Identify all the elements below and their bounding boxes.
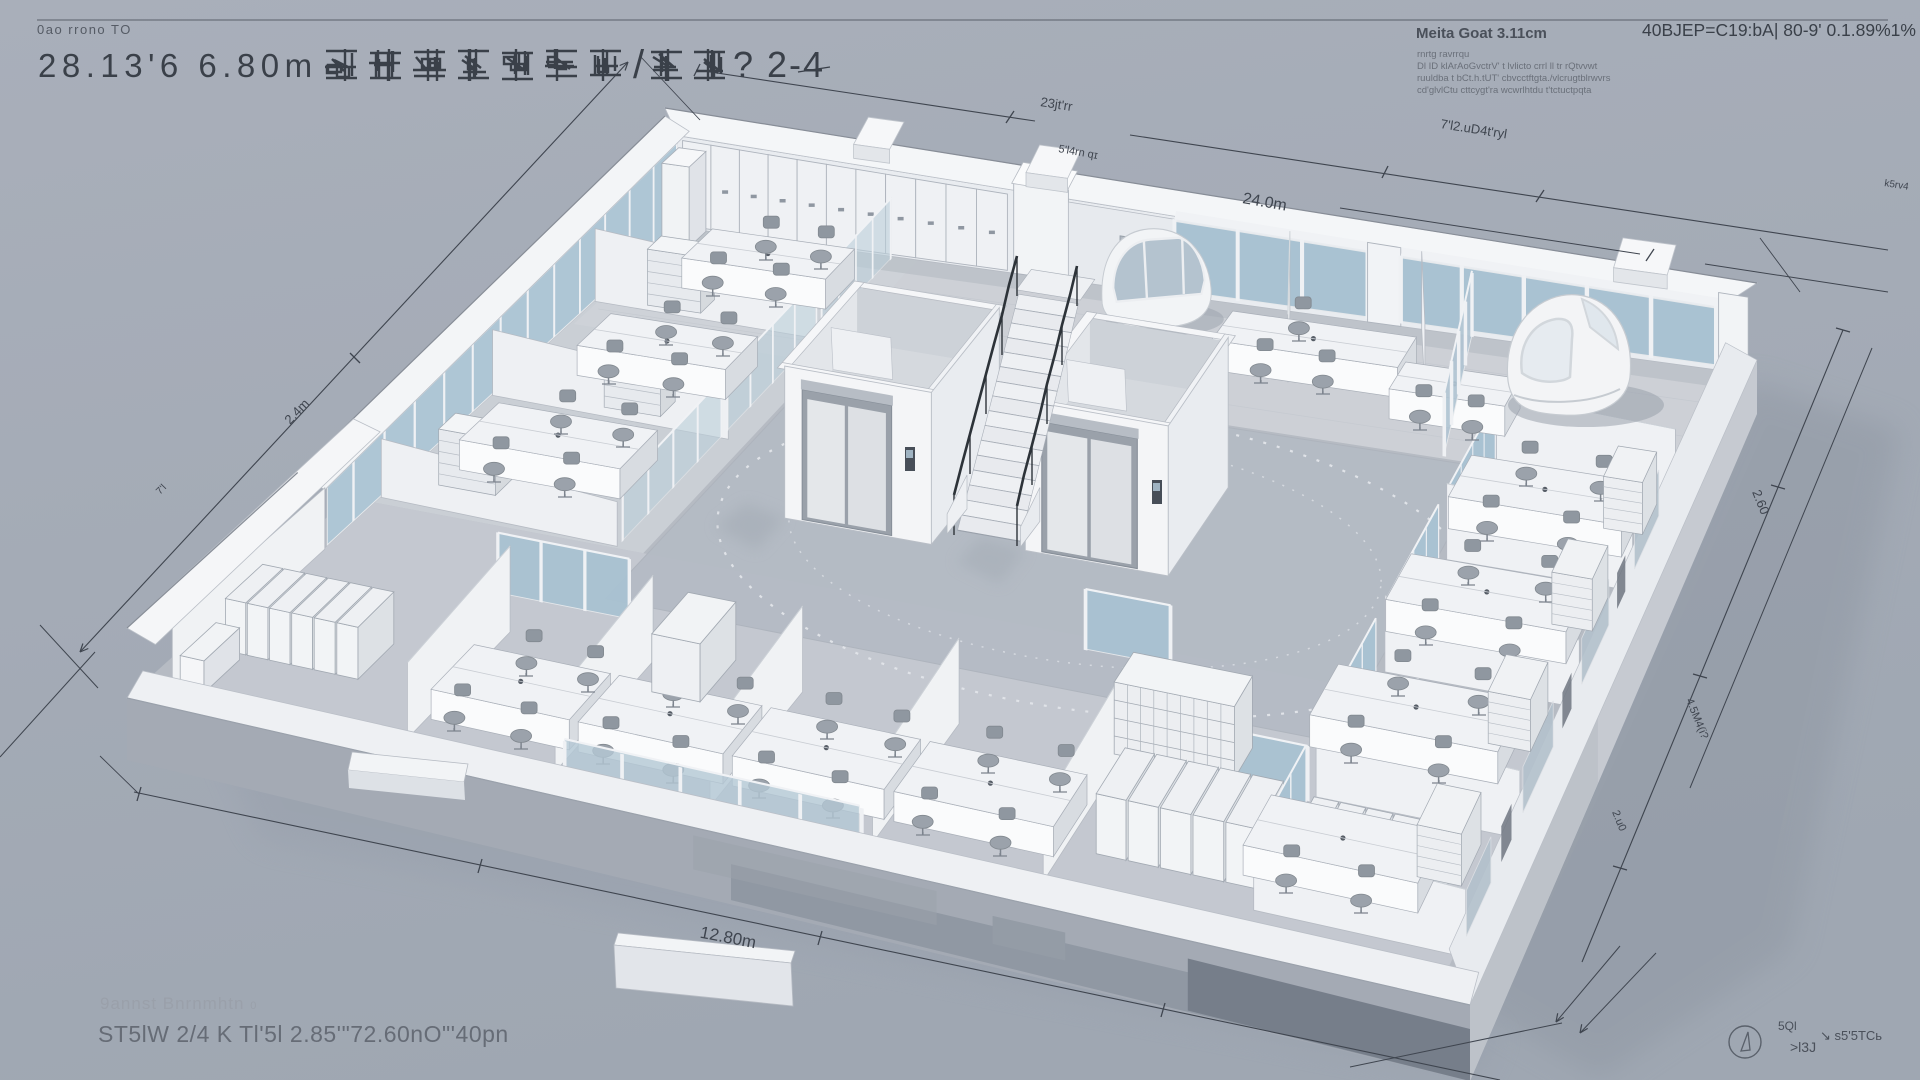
svg-text:ruuldba t bCt.h.tUT' cbvcctftg: ruuldba t bCt.h.tUT' cbvcctftgta./vlcrug… <box>1417 73 1611 84</box>
svg-text:>l3J: >l3J <box>1790 1039 1816 1055</box>
svg-text:40BJEP=C19:bA| 80-9' 0.1.89%1%: 40BJEP=C19:bA| 80-9' 0.1.89%1% <box>1642 20 1916 40</box>
svg-text:Meita Goat 3.11cm: Meita Goat 3.11cm <box>1416 25 1547 42</box>
svg-text:/: / <box>633 43 645 87</box>
svg-text:rnrtg ravrrqu: rnrtg ravrrqu <box>1417 49 1469 60</box>
svg-text:9annst Bnrnmhtn 0: 9annst Bnrnmhtn 0 <box>100 994 257 1013</box>
svg-text:cd'glvlCtu cttcygt'ra wcwrlhtd: cd'glvlCtu cttcygt'ra wcwrlhtdu t'tctuct… <box>1417 85 1592 96</box>
svg-text:0ao rrono TO: 0ao rrono TO <box>37 22 132 37</box>
svg-text:5Ql: 5Ql <box>1778 1019 1797 1033</box>
svg-text:28.13'6 6.80m: 28.13'6 6.80m <box>38 47 318 84</box>
svg-text:ST5lW 2/4 K Tl'5l 2.85'"72.60n: ST5lW 2/4 K Tl'5l 2.85'"72.60nO"'40pn <box>98 1021 509 1047</box>
svg-text:↘ s5'5TCь: ↘ s5'5TCь <box>1820 1028 1882 1043</box>
svg-text:Dl ID klArAoGvctrV' t lvlicto: Dl ID klArAoGvctrV' t lvlicto crrl ll tr… <box>1417 61 1598 72</box>
svg-text:? 2-4: ? 2-4 <box>733 44 825 85</box>
